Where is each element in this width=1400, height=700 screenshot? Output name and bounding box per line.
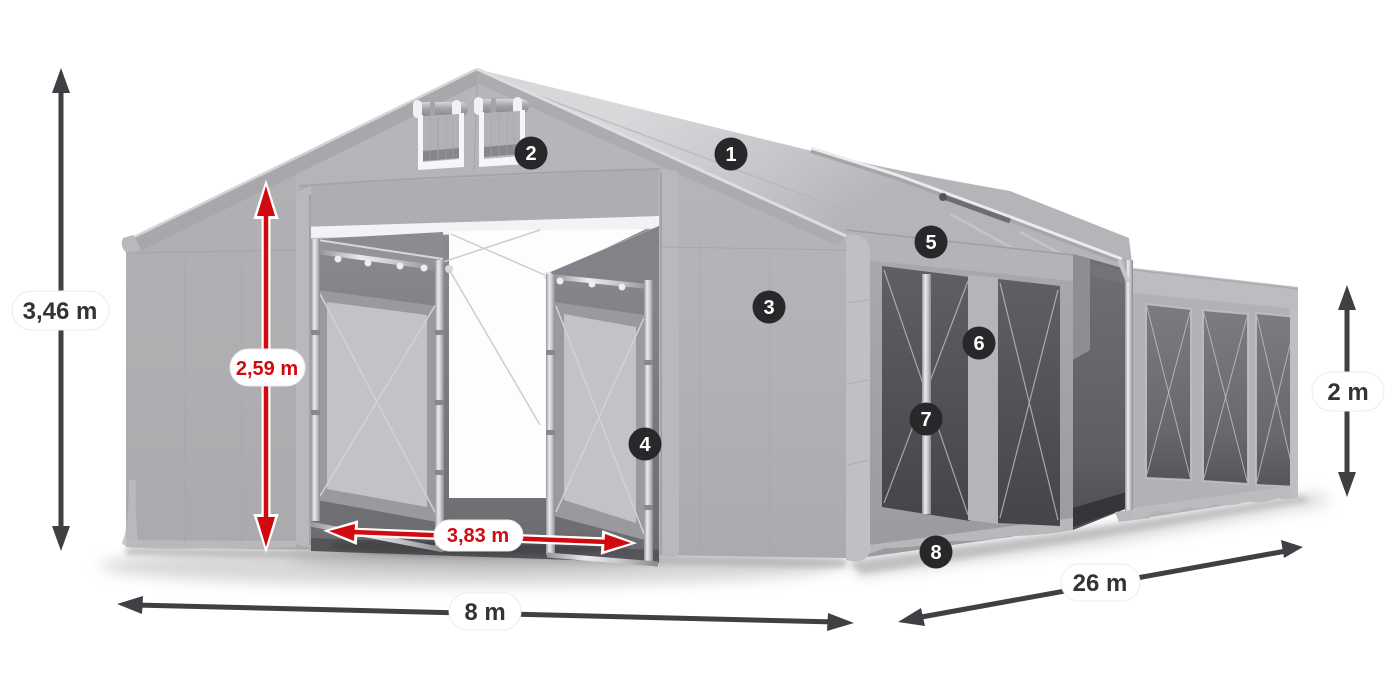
svg-text:2: 2 [525, 143, 536, 165]
svg-text:4: 4 [639, 434, 651, 456]
svg-text:1: 1 [725, 144, 736, 166]
svg-text:6: 6 [973, 333, 984, 355]
svg-text:2 m: 2 m [1327, 379, 1368, 406]
svg-text:2,59 m: 2,59 m [236, 358, 298, 380]
svg-text:5: 5 [925, 232, 936, 254]
svg-text:3,83 m: 3,83 m [447, 525, 509, 547]
svg-text:3: 3 [763, 297, 774, 319]
svg-text:3,46 m: 3,46 m [23, 298, 98, 325]
svg-text:7: 7 [920, 409, 931, 431]
svg-text:8 m: 8 m [464, 599, 505, 626]
svg-text:26 m: 26 m [1073, 570, 1128, 597]
svg-text:8: 8 [930, 542, 941, 564]
